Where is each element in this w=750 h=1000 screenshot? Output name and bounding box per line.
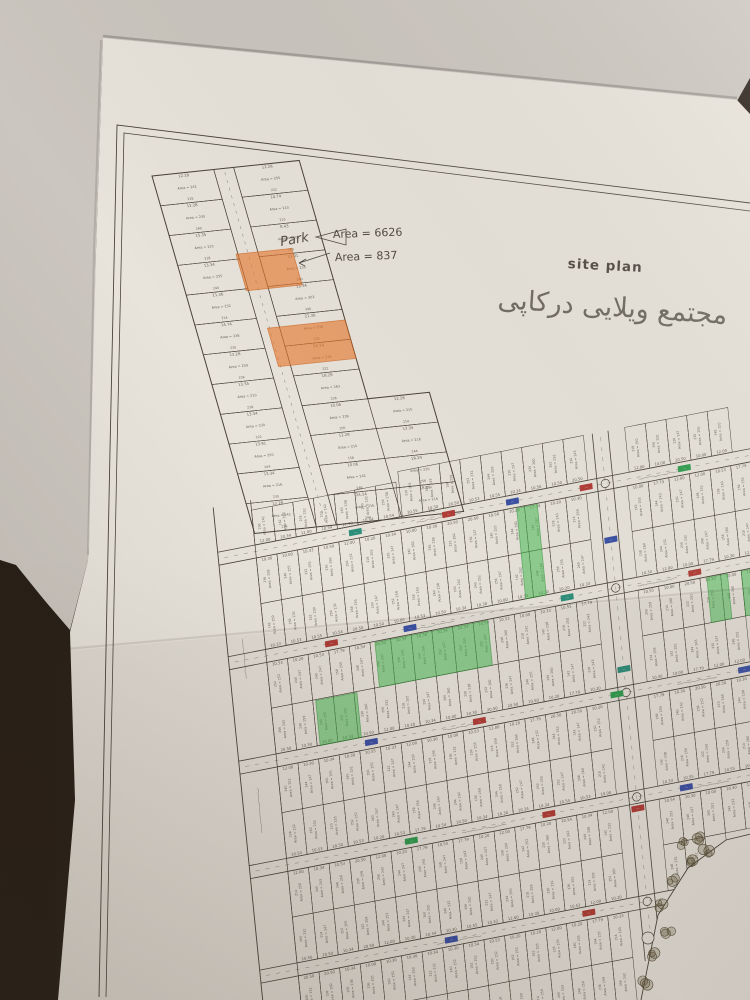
site-plan-photo: 12.28Area = 24221812.28Area = 25022212.2… — [0, 0, 750, 1000]
bottom-shade-overlay — [0, 0, 750, 1000]
